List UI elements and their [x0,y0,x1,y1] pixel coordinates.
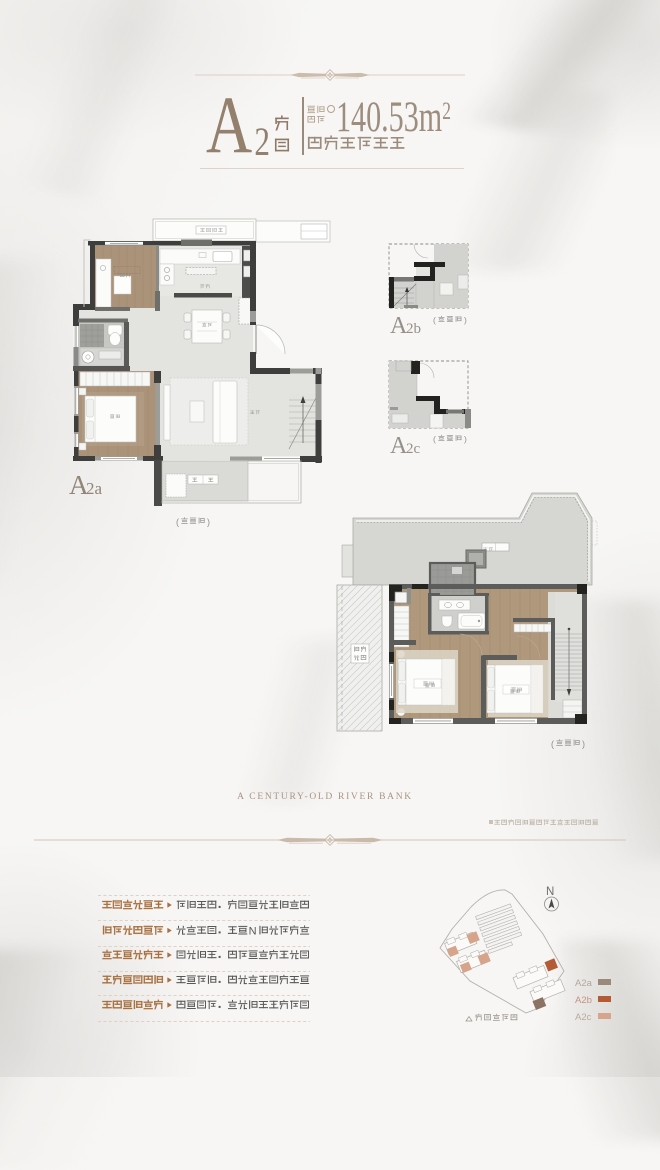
svg-text:(: ( [551,739,554,749]
svg-text:(: ( [176,517,179,527]
svg-text:A2c: A2c [575,1012,592,1023]
svg-text:): ) [207,517,210,527]
svg-text:): ) [582,739,585,749]
svg-text:A2a: A2a [575,978,593,989]
svg-text:(: ( [433,315,436,325]
svg-text:2a: 2a [86,479,103,498]
svg-text:2b: 2b [406,321,421,337]
svg-text:(: ( [433,434,436,444]
svg-text:A2b: A2b [575,995,592,1006]
svg-text:N: N [249,926,257,938]
svg-text:2c: 2c [406,441,421,457]
svg-text:): ) [464,315,467,325]
svg-text:N: N [546,886,554,898]
svg-text:): ) [464,434,467,444]
